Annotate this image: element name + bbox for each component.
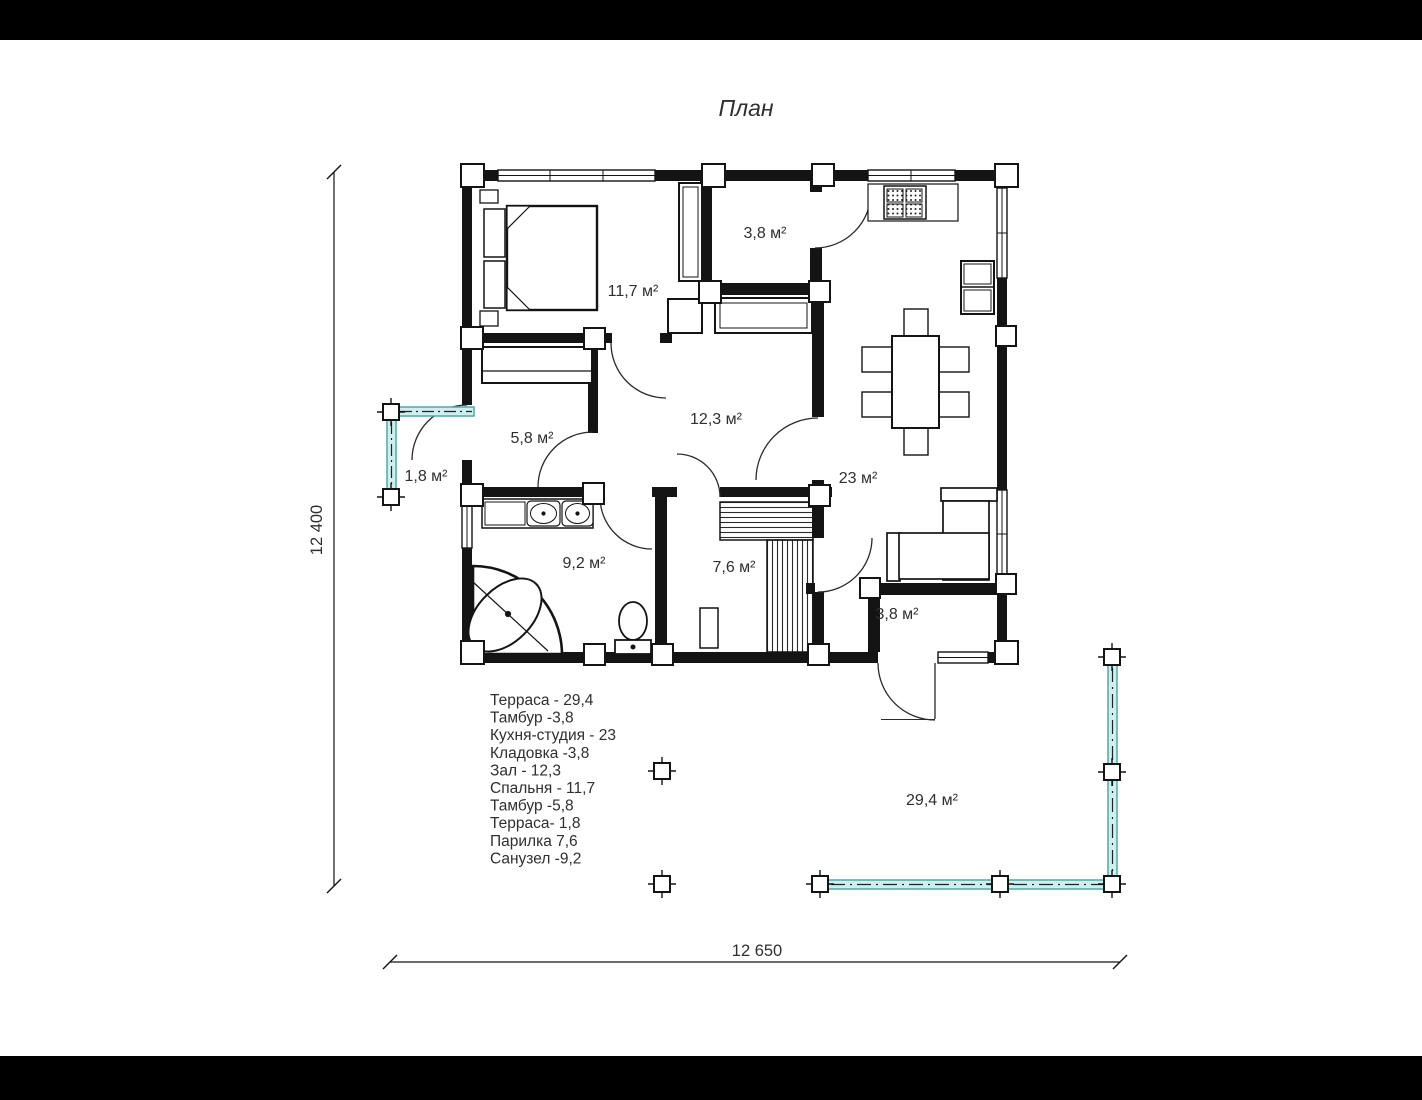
chair (939, 347, 969, 372)
entry-wardrobe (482, 347, 592, 383)
legend-line: Терраса- 1,8 (490, 815, 580, 832)
legend-line: Тамбур -5,8 (490, 798, 574, 815)
railing-large-terrace-bottom (827, 880, 1106, 889)
shelf-top (480, 190, 498, 203)
door-arc-bedroom (611, 343, 666, 398)
fridge-icon (961, 261, 994, 314)
legend-line: Зал - 12,3 (490, 762, 561, 779)
post-icon (1098, 758, 1126, 786)
dim-label-width: 12 650 (732, 942, 782, 960)
room-label-kitchen: 23 м² (839, 470, 878, 487)
nightstand (484, 209, 505, 257)
room-label-terrace-large: 29,4 м² (906, 792, 959, 809)
dim-label-height: 12 400 (308, 505, 326, 555)
door-arc-entry (878, 663, 935, 720)
room-label-hall: 12,3 м² (690, 411, 743, 428)
window-kitchen-right (997, 188, 1007, 278)
floor-plan-drawing: План (0, 0, 1422, 1100)
bed (480, 190, 597, 326)
post-icon (1098, 870, 1126, 898)
door-arc-bathroom (600, 497, 652, 549)
chair (904, 428, 928, 455)
chair (939, 392, 969, 417)
post-icon (648, 757, 676, 785)
dimension-height: 12 400 (308, 165, 341, 893)
window-tambour-bottom (938, 652, 988, 663)
door-arc-sauna-hall (677, 454, 720, 497)
floor-plan-page: План (0, 0, 1422, 1100)
stove-icon (884, 186, 926, 219)
nightstand (484, 261, 505, 308)
legend-line: Тамбур -3,8 (490, 710, 574, 727)
room-label-tambour-west: 5,8 м² (510, 430, 554, 447)
chair (862, 347, 892, 372)
hall-wardrobe (668, 298, 812, 333)
sofa (887, 488, 997, 581)
chair (862, 392, 892, 417)
sauna-panel (767, 540, 813, 652)
vanity-sinks (482, 499, 593, 528)
room-label-terrace-small: 1,8 м² (404, 468, 448, 485)
page-title: План (718, 95, 773, 121)
room-label-sauna: 7,6 м² (712, 559, 756, 576)
post-icon (1098, 643, 1126, 671)
bedroom-wardrobe (679, 183, 702, 281)
letterbox-top (0, 0, 1422, 40)
letterbox-bottom (0, 1056, 1422, 1100)
legend-line: Кладовка -3,8 (490, 745, 589, 762)
room-label-bathroom: 9,2 м² (562, 555, 606, 572)
sauna-bench-upper (720, 502, 813, 540)
legend-line: Санузел -9,2 (490, 850, 581, 867)
post-icon (377, 398, 405, 426)
legend: Терраса - 29,4 Тамбур -3,8 Кухня-студия … (490, 692, 616, 867)
dining-table (862, 309, 969, 455)
door-arc-storage (815, 192, 871, 248)
railing-small-terrace-top (397, 407, 474, 416)
sauna-stove (700, 608, 718, 648)
toilet (615, 602, 651, 654)
window-living-right (997, 490, 1007, 578)
hall-closet (668, 299, 702, 333)
room-label-bedroom: 11,7 м² (608, 283, 659, 300)
post-icon (806, 870, 834, 898)
door-jamb (806, 583, 815, 594)
railing-small-terrace-left (387, 419, 396, 492)
window-bathroom-left (462, 505, 472, 548)
post-icon (648, 870, 676, 898)
legend-line: Парилка 7,6 (490, 833, 578, 850)
chair (904, 309, 928, 336)
door-arc-kitchen (756, 418, 818, 480)
legend-line: Терраса - 29,4 (490, 692, 594, 709)
room-label-tambour-south: 3,8 м² (875, 606, 919, 623)
window-bedroom-top (498, 170, 655, 181)
window-kitchen-top (868, 170, 955, 181)
legend-line: Кухня-студия - 23 (490, 727, 616, 744)
shelf-bottom (480, 311, 498, 326)
dimension-width: 12 650 (383, 942, 1127, 969)
sauna-benches (700, 502, 815, 652)
post-icon (377, 483, 405, 511)
room-label-storage: 3,8 м² (743, 225, 787, 242)
post-icon (986, 870, 1014, 898)
legend-line: Спальня - 11,7 (490, 780, 595, 797)
